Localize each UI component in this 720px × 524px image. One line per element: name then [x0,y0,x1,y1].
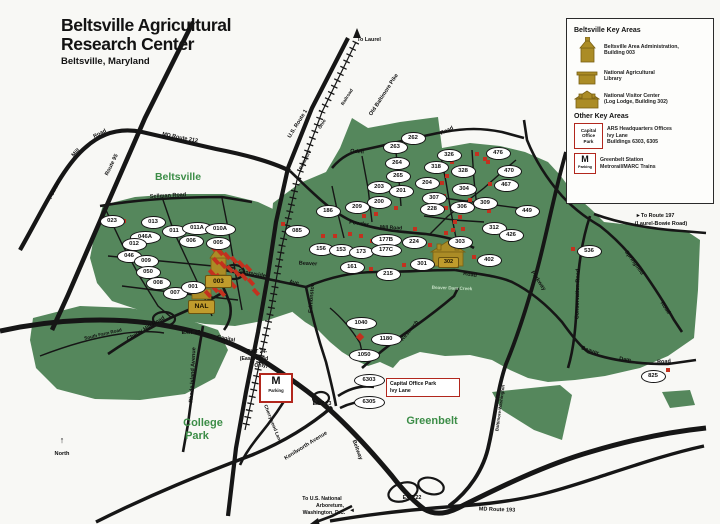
red-marker [440,181,444,185]
red-marker [348,232,352,236]
metro-m-glyph: M [261,375,291,388]
building-oval-012: 012 [122,238,147,251]
red-marker [281,222,285,226]
building-oval-476: 476 [486,147,511,160]
map-page: Beltsville Agricultural Research Center … [0,0,720,524]
area-label-college: College [183,417,223,429]
road-label: Powder [349,220,370,229]
road-label: Beaver [580,345,599,356]
road-label: Cherry Hill Road [126,315,166,342]
note-label: ►To Route 197 [636,213,675,219]
road-label: Road [440,125,455,136]
road-label: MD Route 193 [479,506,516,513]
road-label: Beltway [351,439,364,461]
red-marker [458,215,462,219]
building-oval-215: 215 [376,268,401,281]
red-marker [394,206,398,210]
building-oval-467: 467 [494,179,519,192]
road-label: MD Route 212 [162,132,199,145]
road-label: Mill [71,148,82,159]
road-label: Springfield [623,250,645,277]
exit-label: Only) [254,363,267,369]
red-marker [461,227,465,231]
building-oval-173: 173 [349,246,374,259]
building-oval-209: 209 [345,201,370,214]
building-oval-177C: 177C [371,244,402,257]
area-label-park: Park [185,430,209,442]
red-marker [321,234,325,238]
road-label: Research [400,320,421,343]
exit-label: EXIT 22 [403,495,422,501]
road-label: Edmonston [308,283,316,314]
legend-library-line2: Library [604,76,655,82]
road-label: Powder [48,180,62,200]
red-marker [369,267,373,271]
building-oval-203: 203 [367,181,392,194]
legend-station-line2: Metrorail/MARC Trains [600,164,656,170]
red-marker [252,288,260,297]
red-marker [402,263,406,267]
note-label: To Laurel [357,37,381,43]
building-oval-186: 186 [316,205,341,218]
road-label: Road [463,271,477,279]
capital-office-park-box-icon: Capital Office Park [574,123,603,149]
legend: Beltsville Key Areas Beltsville Area Adm… [566,18,714,204]
red-marker [333,234,337,238]
building-oval-263: 263 [383,141,408,154]
building-oval-085: 085 [285,225,310,238]
building-oval-306: 306 [450,201,475,214]
road-label: Beaver Dam Creek [432,285,473,291]
red-marker [445,174,449,178]
road-label: Baltimore-Washington [494,385,505,432]
area-label-greenbelt: Greenbelt [406,415,457,427]
red-marker [571,247,575,251]
road-label: Road [93,128,108,140]
callout-line-2: Ivy Lane [390,388,456,395]
building-oval-318: 318 [424,161,449,174]
red-marker [453,220,457,224]
red-marker [359,234,363,238]
legend-item-library: National Agricultural Library [574,67,707,85]
note-label: To U.S. National [302,496,341,502]
road-label: Conservation Road [575,269,582,320]
road-label: Route 95 [104,153,120,177]
red-marker [488,182,492,186]
road-label: Parkway [529,270,546,292]
road-label: U.S. Route 1 [287,109,309,140]
area-label-beltsville: Beltsville [155,171,201,183]
legend-ars-line1: ARS Headquarters Offices [607,126,672,132]
red-marker [362,214,366,218]
legend-item-capital-office-park: Capital Office Park ARS Headquarters Off… [574,123,707,149]
exit-label: EXIT 23 [313,401,332,407]
building-oval-264: 264 [385,157,410,170]
building-oval-161: 161 [340,261,365,274]
red-marker [204,290,212,299]
building-oval-201: 201 [389,185,414,198]
legend-admin-line2: Building 003 [604,50,679,56]
legend-subtitle: Other Key Areas [574,113,707,120]
red-marker [451,228,455,232]
admin-building-label: 003 [205,275,232,288]
note-label: North [55,451,70,457]
building-oval-023: 023 [100,215,125,228]
legend-title: Beltsville Key Areas [574,27,707,34]
road-label: Ohio [317,118,327,130]
legend-item-visitor-center: National Visitor Center (Log Lodge, Buil… [574,89,707,109]
building-oval-426: 426 [499,229,524,242]
building-oval-013: 013 [141,216,166,229]
building-oval-010A: 010A [205,223,236,236]
note-label: ◄ [349,508,355,514]
capital-office-park-callout: Capital Office Park Ivy Lane [386,378,460,397]
red-marker [413,227,417,231]
road-label: Odell [350,149,364,156]
legend-visitor-line2: (Log Lodge, Building 302) [604,99,668,105]
building-oval-303: 303 [448,236,473,249]
building-oval-204: 204 [415,177,440,190]
red-marker [444,206,448,210]
building-oval-200: 200 [367,196,392,209]
red-marker [486,160,490,164]
building-oval-6305: 6305 [354,396,385,409]
building-oval-224: 224 [402,236,427,249]
red-marker [356,333,364,341]
legend-ars-line3: Buildings 6303, 6305 [607,139,672,145]
metro-parking-box-icon: M Parking [574,153,596,174]
building-oval-328: 328 [451,165,476,178]
road-label: Road [657,359,671,366]
building-oval-304: 304 [452,183,477,196]
lodge-302-label: 302 [438,257,459,268]
building-oval-1040: 1040 [346,317,377,330]
road-label: Baltimore [298,149,312,170]
note-label: Arboretum, [316,503,344,509]
road-label: Railroad [340,88,354,106]
building-oval-470: 470 [497,165,522,178]
building-oval-6303: 6303 [354,374,385,387]
red-marker [374,212,378,216]
red-marker [444,231,448,235]
red-marker [428,243,432,247]
road-label: Mill Road [380,224,403,231]
building-oval-536: 536 [577,245,602,258]
red-marker [666,368,670,372]
road-label: Rhode Island Avenue [189,347,198,403]
road-label: South Farm Road [84,327,122,340]
exit-label: EXIT 24- [247,349,267,355]
building-oval-005: 005 [206,237,231,250]
road-label: Cherrywood Lane [262,404,282,443]
note-label: ↑ [60,435,65,445]
road-label: Ave [289,279,300,287]
note-label: Washington, D.C. [303,510,346,516]
building-oval-301: 301 [410,258,435,271]
red-marker [218,289,226,298]
building-oval-1180: 1180 [371,333,402,346]
building-oval-309: 309 [473,197,498,210]
road-label: Dam [619,356,632,364]
red-marker [475,152,479,156]
legend-item-greenbelt-station: M Parking Greenbelt Station Metrorail/MA… [574,153,707,174]
admin-building-icon [574,37,600,63]
library-building-icon [574,67,600,85]
road-label: Beaver [299,261,318,268]
metro-parking-text: Parking [261,388,291,393]
metro-parking-box: M Parking [259,373,293,403]
road-label: Sellman Road [150,192,187,200]
building-oval-825: 825 [641,370,666,383]
building-oval-326: 326 [437,149,462,162]
road-label: Old Baltimore Pike [368,73,400,117]
log-lodge-icon [574,89,600,109]
exit-label: EXIT 25 [182,330,201,336]
red-marker [247,278,255,287]
exit-label: (Eastbound [240,356,269,362]
building-oval-228: 228 [420,203,445,216]
road-label: Kenilworth Avenue [283,430,328,461]
legend-item-admin: Beltsville Area Administration, Building… [574,37,707,63]
red-marker [472,255,476,259]
building-oval-265: 265 [386,170,411,183]
building-oval-006: 006 [179,235,204,248]
road-label: Capital [216,334,235,343]
nal-label: NAL [188,300,215,314]
note-label: (Laurel-Bowie Road) [635,221,687,227]
building-oval-001: 001 [181,281,206,294]
building-oval-402: 402 [477,254,502,267]
road-label: Road [659,301,672,316]
building-oval-1050: 1050 [349,349,380,362]
building-oval-449: 449 [515,205,540,218]
